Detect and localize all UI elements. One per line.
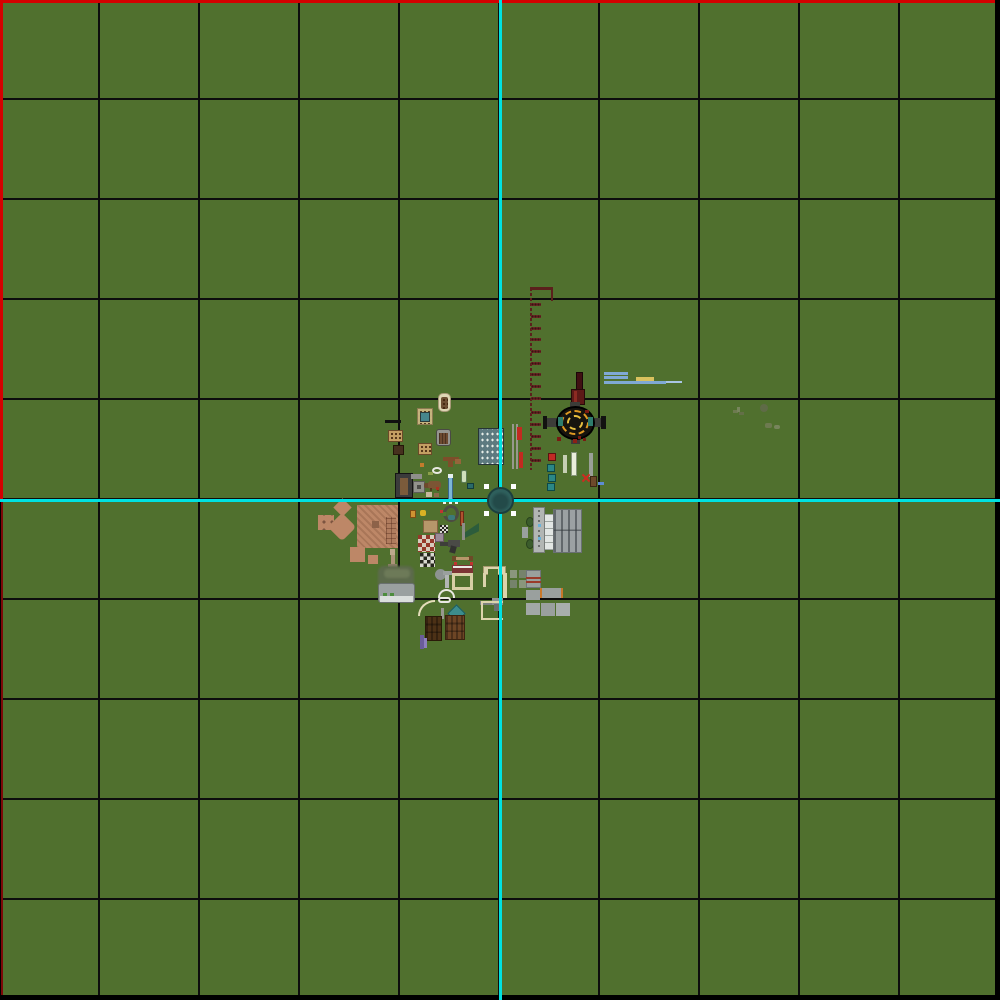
- gift-teal-3[interactable]: [547, 483, 555, 491]
- gift-teal-1[interactable]: [547, 464, 555, 472]
- mast-flag-mid[interactable]: [519, 452, 523, 468]
- debris-red[interactable]: [436, 487, 439, 490]
- statue-body[interactable]: [391, 555, 395, 564]
- dash-line-white[interactable]: [443, 501, 461, 504]
- table-cream-notch[interactable]: [488, 569, 498, 575]
- map-border-left-lower: [0, 500, 3, 1000]
- runway-dots[interactable]: [538, 510, 540, 550]
- bench-post-2[interactable]: [561, 588, 563, 598]
- gift-teal-2[interactable]: [548, 474, 556, 482]
- slab-2[interactable]: [526, 603, 540, 615]
- pad-khaki-core[interactable]: [420, 412, 430, 422]
- machine-circuit-inner[interactable]: [567, 415, 583, 430]
- bed-pillow-stripe[interactable]: [453, 566, 472, 568]
- map-border-right: [995, 0, 1000, 1000]
- checker-rw[interactable]: [418, 535, 435, 552]
- duck[interactable]: [420, 510, 426, 516]
- barrel-dark[interactable]: [425, 616, 442, 641]
- flag-pole-gray[interactable]: [462, 523, 465, 540]
- checker-mini[interactable]: [440, 525, 448, 533]
- mast-rail-1[interactable]: [512, 424, 514, 469]
- tool-purple-2[interactable]: [424, 638, 427, 648]
- crate-keys-1[interactable]: [388, 430, 403, 442]
- rail-blue-tail[interactable]: [666, 381, 682, 383]
- bus-light-1[interactable]: [383, 593, 387, 596]
- chip-teal[interactable]: [467, 483, 474, 489]
- table-cream-leg-1[interactable]: [483, 573, 486, 587]
- selected-orb[interactable]: [487, 487, 514, 514]
- conveyor-rung-3[interactable]: [531, 327, 541, 330]
- barrel-light[interactable]: [445, 615, 465, 640]
- crate-keys-2[interactable]: [418, 443, 432, 455]
- rail-blue-2[interactable]: [604, 376, 628, 379]
- map-border-top: [0, 0, 1000, 3]
- conveyor-rung-11[interactable]: [531, 423, 541, 426]
- machine-arm-cap-r[interactable]: [601, 416, 606, 429]
- machine-arm-cap-l[interactable]: [543, 416, 547, 429]
- checker-bw[interactable]: [420, 553, 435, 567]
- bar-pale-1[interactable]: [563, 455, 567, 473]
- pad-mauve[interactable]: [435, 533, 444, 542]
- crate-mossy-3[interactable]: [510, 580, 517, 588]
- clay-square-small[interactable]: [368, 555, 378, 564]
- gem-red[interactable]: [548, 453, 556, 461]
- crossing-stripe-2[interactable]: [526, 581, 541, 583]
- bus-light-2[interactable]: [390, 593, 394, 596]
- crate-mossy-4[interactable]: [519, 580, 526, 588]
- selection-handle-4[interactable]: [511, 511, 516, 516]
- bench-post-1[interactable]: [540, 588, 542, 598]
- table-tan[interactable]: [423, 520, 438, 533]
- conveyor-rung-8[interactable]: [531, 385, 541, 388]
- table-stem[interactable]: [448, 461, 453, 467]
- dot-maroon-4[interactable]: [585, 410, 589, 413]
- capsule-outline[interactable]: [438, 597, 451, 603]
- hangar-dot-2[interactable]: [538, 537, 541, 540]
- flag-green[interactable]: [465, 523, 479, 538]
- conveyor-rung-2[interactable]: [531, 315, 541, 318]
- boat-interior[interactable]: [441, 397, 448, 409]
- map-border-left-upper: [0, 0, 3, 500]
- slab-4[interactable]: [556, 603, 570, 616]
- machine-teal-r[interactable]: [588, 417, 593, 426]
- hangar[interactable]: [553, 509, 582, 553]
- conveyor-rung-12[interactable]: [531, 435, 541, 438]
- camo-mound[interactable]: [760, 404, 768, 412]
- arc-corner[interactable]: [418, 600, 435, 616]
- bar-gray[interactable]: [589, 453, 593, 477]
- capsule-pale[interactable]: [461, 470, 467, 483]
- debris-chicken-2[interactable]: [434, 493, 439, 497]
- conveyor-rung-13[interactable]: [531, 447, 541, 450]
- machine-teal-l[interactable]: [558, 417, 563, 426]
- selection-handle-1[interactable]: [484, 484, 489, 489]
- robot-pipe[interactable]: [445, 575, 449, 588]
- crossing-pad[interactable]: [526, 570, 541, 588]
- frame-cream-open[interactable]: [481, 601, 503, 620]
- crate-mossy-2[interactable]: [519, 570, 526, 578]
- slab-3[interactable]: [541, 603, 555, 616]
- conveyor-rung-10[interactable]: [531, 411, 541, 414]
- selection-handle-3[interactable]: [484, 511, 489, 516]
- camo-star-c[interactable]: [739, 412, 744, 415]
- bed-frame[interactable]: [452, 573, 473, 590]
- wall-segment[interactable]: [385, 420, 401, 423]
- totem-blue-dash[interactable]: [598, 482, 604, 485]
- machine-dot-bottom[interactable]: [573, 439, 577, 443]
- dot-maroon-3[interactable]: [583, 438, 586, 441]
- bed-rail[interactable]: [456, 557, 469, 560]
- table-side[interactable]: [455, 459, 461, 464]
- horse-leg-1[interactable]: [430, 488, 432, 491]
- conveyor-rung-14[interactable]: [531, 459, 541, 462]
- panel-grid[interactable]: [478, 428, 504, 465]
- conveyor-rung-7[interactable]: [531, 373, 541, 376]
- car-smudge-2[interactable]: [384, 569, 410, 578]
- table-cream-leg-2[interactable]: [503, 573, 507, 598]
- gun-a-grip[interactable]: [449, 545, 457, 553]
- hangar-dot-1[interactable]: [538, 524, 541, 527]
- cabinet-arm[interactable]: [411, 474, 422, 479]
- cabinet-core[interactable]: [400, 478, 408, 495]
- fig-orange[interactable]: [410, 510, 416, 518]
- furnace-core[interactable]: [439, 433, 448, 444]
- selection-handle-2[interactable]: [511, 484, 516, 489]
- conveyor-top-tick[interactable]: [551, 288, 553, 301]
- dot-maroon-2[interactable]: [578, 436, 581, 439]
- camo-pair-b[interactable]: [774, 425, 780, 429]
- debris-green[interactable]: [428, 472, 433, 475]
- chest-dark[interactable]: [393, 445, 404, 455]
- flower-green[interactable]: [443, 512, 446, 516]
- conveyor-rung-4[interactable]: [531, 338, 541, 341]
- pad-gray-l[interactable]: [522, 527, 528, 538]
- flag-blue-cap[interactable]: [448, 474, 453, 478]
- ring-small[interactable]: [432, 467, 442, 474]
- dot-maroon-1[interactable]: [557, 437, 561, 441]
- map-border-bottom: [0, 995, 1000, 1000]
- rail-blue-1[interactable]: [604, 372, 628, 375]
- crossing-stripe-1[interactable]: [526, 577, 541, 579]
- clay-square-mid[interactable]: [350, 547, 365, 562]
- mast-flag-top[interactable]: [517, 427, 522, 440]
- conveyor-rung-9[interactable]: [531, 397, 541, 400]
- conveyor-rung-6[interactable]: [531, 362, 541, 365]
- conveyor-rung-5[interactable]: [531, 350, 541, 353]
- bar-pale-2[interactable]: [571, 452, 577, 476]
- rail-blue-long[interactable]: [604, 381, 666, 384]
- map-canvas[interactable]: [0, 0, 1000, 1000]
- bench-orange[interactable]: [540, 588, 563, 598]
- conveyor-top[interactable]: [530, 287, 553, 290]
- bus-skirt[interactable]: [380, 596, 413, 602]
- clay-building-center[interactable]: [372, 521, 379, 528]
- camo-pair-a[interactable]: [765, 423, 772, 428]
- crate-mossy-1[interactable]: [510, 570, 517, 578]
- debris-orange[interactable]: [420, 463, 424, 467]
- clay-building-windows[interactable]: [386, 517, 396, 544]
- slab-1[interactable]: [526, 590, 540, 600]
- conveyor-rung-1[interactable]: [531, 303, 541, 306]
- well-water[interactable]: [448, 515, 455, 520]
- vent-core[interactable]: [417, 485, 421, 489]
- debris-chicken-1[interactable]: [426, 492, 432, 497]
- totem-brown[interactable]: [590, 476, 597, 487]
